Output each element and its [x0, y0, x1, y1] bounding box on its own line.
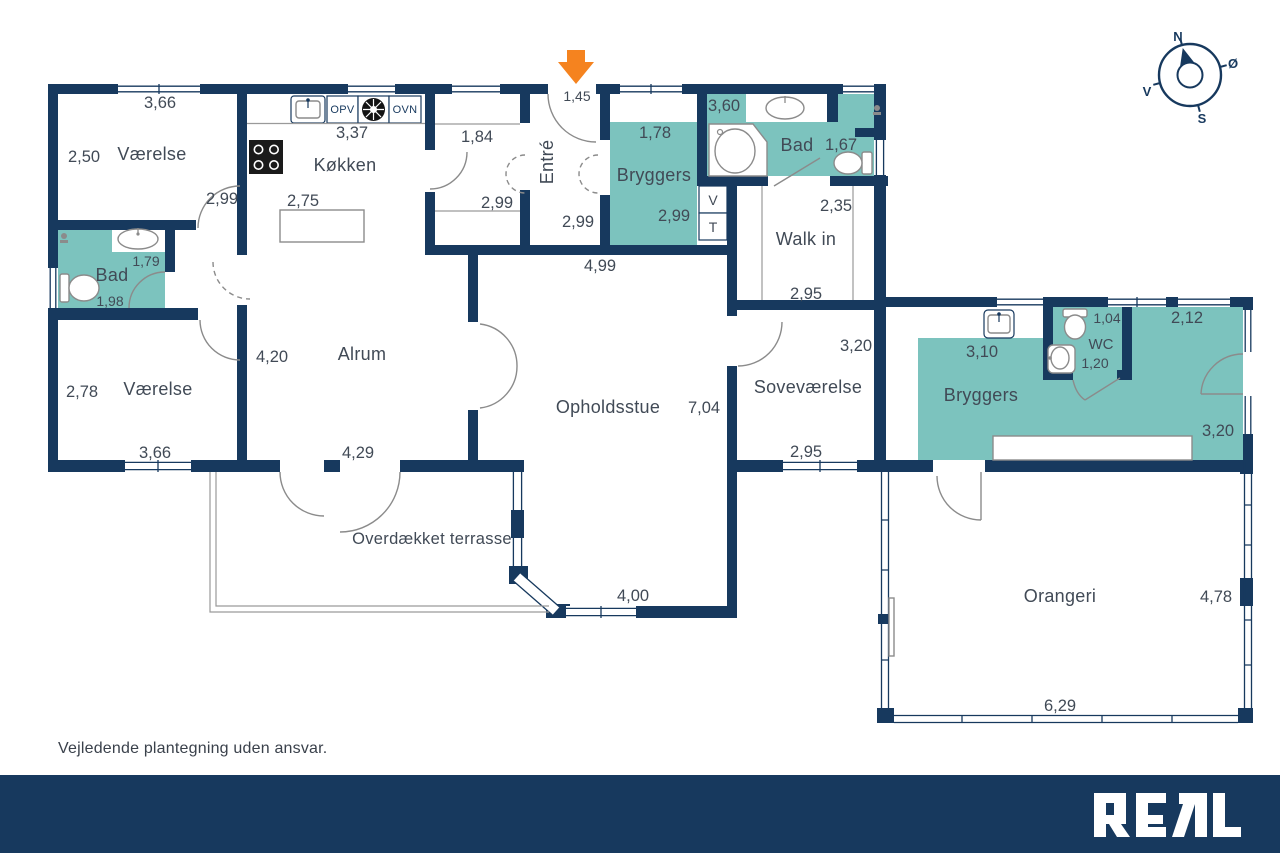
compass-south: S: [1198, 111, 1207, 126]
orangeri-detail: [889, 598, 894, 656]
dim-wc-top: 1,04: [1093, 310, 1120, 326]
sink-icon-bad-vest: [118, 228, 158, 249]
room-label-wc: WC: [1089, 336, 1114, 353]
compass-west: V: [1143, 84, 1152, 99]
dim-koekken-left: 2,75: [287, 192, 319, 210]
dim-sovevaerelse-bottom: 2,95: [790, 443, 822, 461]
dim-gang-top: 1,84: [461, 128, 493, 146]
door-arc-terrasse-2: [340, 472, 400, 532]
real-logo: REAL: [1092, 792, 1242, 838]
opening-arc-corridor: [213, 262, 250, 299]
dryer-label: T: [709, 219, 718, 235]
kitchen-island-counter: [280, 210, 364, 242]
dim-walkin-bottom: 2,95: [790, 285, 822, 303]
dim-vaerelse-sv-left: 2,78: [66, 383, 98, 401]
disclaimer-text: Vejledende plantegning uden ansvar.: [58, 740, 327, 758]
corner-sink-icon-wc: [1048, 345, 1075, 373]
dim-alrum-bottom: 4,29: [342, 444, 374, 462]
dim-vaerelse-sv-bottom: 3,66: [139, 444, 171, 462]
dim-opholdsstue-bottom: 4,00: [617, 587, 649, 605]
room-label-bryggers-oest: Bryggers: [944, 385, 1018, 405]
window: [348, 84, 395, 94]
window: [997, 297, 1043, 307]
toilet-icon-bad-vest: [60, 274, 99, 302]
room-label-vaerelse-sv: Værelse: [123, 379, 192, 399]
room-label-terrasse: Overdækket terrasse: [352, 530, 512, 548]
dim-entre-door: 1,45: [563, 88, 590, 104]
dim-bryggers-oest-top: 3,10: [966, 343, 998, 361]
window: [1243, 310, 1253, 352]
real-logo-letters: [1094, 793, 1241, 837]
bathtub-icon: [709, 124, 767, 176]
dim-orangeri-bottom: 6,29: [1044, 697, 1076, 715]
room-label-opholdsstue: Opholdsstue: [556, 397, 660, 417]
dim-wc-left: 1,20: [1081, 355, 1108, 371]
compass-east: Ø: [1228, 56, 1238, 71]
door-arc-terrasse-1: [280, 472, 324, 516]
window: [843, 84, 874, 94]
dim-walkin-top: 2,35: [820, 197, 852, 215]
dim-bryggers-nord-bottom: 2,99: [658, 207, 690, 225]
opening-arc-entre-bryggers: [579, 155, 598, 193]
bryggers-counter: [993, 436, 1192, 460]
kitchen-sink-icon: [291, 96, 325, 123]
room-label-alrum: Alrum: [338, 344, 387, 364]
room-label-walkin: Walk in: [776, 229, 836, 249]
dim-gang-bottom: 2,99: [481, 194, 513, 212]
sink-icon-bad-nord: [766, 96, 804, 119]
door-arc-orangeri: [937, 472, 981, 520]
dim-fordeling: 4,99: [584, 257, 616, 275]
footer-bar: REAL: [0, 775, 1280, 853]
dim-orangeri-right: 4,78: [1200, 588, 1232, 606]
double-door-arcs-alrum: [480, 324, 517, 408]
window: [1108, 297, 1166, 307]
bay-window: [511, 472, 560, 615]
window: [1243, 396, 1253, 434]
window: [620, 84, 682, 94]
window: [874, 140, 886, 175]
cooktop-icon: [249, 140, 283, 174]
floor-plan: N Ø S V 3,66 Værelse 2,50 2,99 3,37 Køkk…: [0, 0, 1280, 775]
window: [118, 84, 200, 94]
window: [1178, 297, 1230, 307]
window: [783, 460, 857, 472]
dim-vaerelse-nw-top: 3,66: [144, 94, 176, 112]
dim-bryggers-oest-right: 3,20: [1202, 422, 1234, 440]
room-label-bad-vest: Bad: [96, 265, 129, 285]
dim-bad-vest-top: 1,79: [132, 253, 159, 269]
compass-north: N: [1173, 29, 1182, 44]
dim-opholdsstue-right: 7,04: [688, 399, 720, 417]
dim-sovevaerelse-right: 3,20: [840, 337, 872, 355]
window: [48, 268, 58, 308]
sink-icon-bryggers-oest: [984, 310, 1014, 338]
oven-label: OVN: [393, 104, 418, 116]
extractor-fan-icon: [358, 96, 389, 123]
dim-bryggers-nord-top: 1,78: [639, 124, 671, 142]
room-label-bad-nord: Bad: [781, 135, 814, 155]
dim-koekken-top: 3,37: [336, 124, 368, 142]
window: [566, 606, 636, 618]
dim-bryggers-oest-right-top: 2,12: [1171, 309, 1203, 327]
dim-vaerelse-nw-left: 2,50: [68, 148, 100, 166]
dishwasher-label: OPV: [330, 104, 354, 116]
door-arc-vaerelse-sv: [200, 320, 240, 360]
room-label-orangeri: Orangeri: [1024, 586, 1096, 606]
compass-rose: N Ø S V: [1143, 28, 1238, 126]
dim-vaerelse-nw-door: 2,99: [206, 190, 238, 208]
dim-alrum-left: 4,20: [256, 348, 288, 366]
dim-bad-nord-top: 3,60: [708, 97, 740, 115]
door-arc-sovevaerelse: [738, 322, 782, 366]
room-label-bryggers-nord: Bryggers: [617, 165, 691, 185]
toilet-icon-wc: [1063, 309, 1087, 339]
room-label-vaerelse-nw: Værelse: [117, 144, 186, 164]
toilet-icon-bad-nord: [834, 152, 872, 174]
washer-label: V: [708, 192, 718, 208]
door-arc-koekken: [430, 152, 467, 189]
room-label-entre: Entré: [537, 140, 557, 185]
dim-bad-nord-right: 1,67: [825, 136, 857, 154]
room-label-sovevaerelse: Soveværelse: [754, 377, 862, 397]
entry-arrow-icon: [558, 50, 594, 84]
room-label-koekken: Køkken: [314, 155, 377, 175]
window: [452, 84, 500, 94]
dim-bad-vest-bottom: 1,98: [96, 293, 123, 309]
opening-arc-gang: [506, 155, 525, 193]
dim-entre-bottom: 2,99: [562, 213, 594, 231]
